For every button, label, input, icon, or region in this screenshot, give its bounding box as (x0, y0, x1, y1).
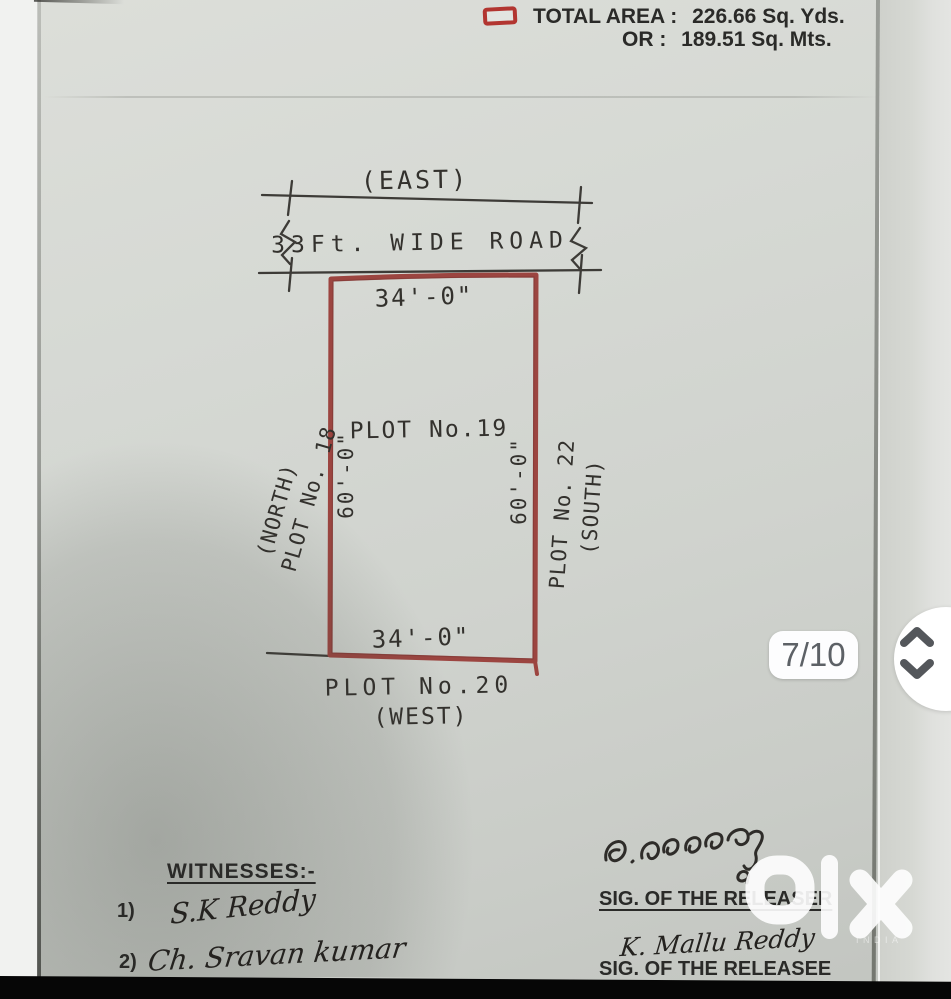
plot-diagram-lines (0, 0, 951, 999)
page-indicator-label: 7/10 (781, 636, 845, 674)
releaser-label: SIG. OF THE RELEASER (599, 888, 832, 911)
west-direction-label: (WEST) (373, 703, 469, 731)
east-direction-label: (EAST) (361, 165, 470, 196)
witness1-number: 1) (117, 900, 135, 923)
west-plot-label: PLOT No.20 (325, 672, 514, 701)
or-area-value: 189.51 Sq. Mts. (681, 28, 832, 51)
gallery-nav-control[interactable] (894, 607, 951, 711)
left-dimension-label: 60'-0" (334, 431, 358, 519)
chevron-down-icon[interactable] (904, 663, 930, 675)
bottom-dimension-label: 34'-0" (371, 622, 471, 653)
total-area-value: 226.66 Sq. Yds. (692, 5, 845, 28)
road-width-label: 33Ft. WIDE ROAD (271, 227, 569, 258)
total-area-label: TOTAL AREA : (533, 5, 677, 28)
plot-number-label: PLOT No.19 (350, 416, 509, 445)
right-dimension-label: 60'-0" (507, 437, 531, 525)
top-dimension-label: 34'-0" (374, 281, 474, 312)
screenshot-root: TOTAL AREA : 226.66 Sq. Yds. OR : 189.51… (0, 0, 951, 999)
or-area-line: OR : 189.51 Sq. Mts. (622, 28, 832, 52)
page-indicator-badge: 7/10 (769, 631, 858, 679)
chevron-up-icon[interactable] (904, 631, 930, 643)
or-area-label: OR : (622, 28, 666, 51)
releasee-label: SIG. OF THE RELEASEE (599, 958, 831, 981)
witness2-number: 2) (119, 951, 137, 974)
witnesses-title: WITNESSES:- (167, 860, 316, 884)
plot-boundary-legend-icon (483, 6, 518, 26)
releaser-signature (598, 822, 778, 888)
total-area-line: TOTAL AREA : 226.66 Sq. Yds. (533, 5, 845, 29)
